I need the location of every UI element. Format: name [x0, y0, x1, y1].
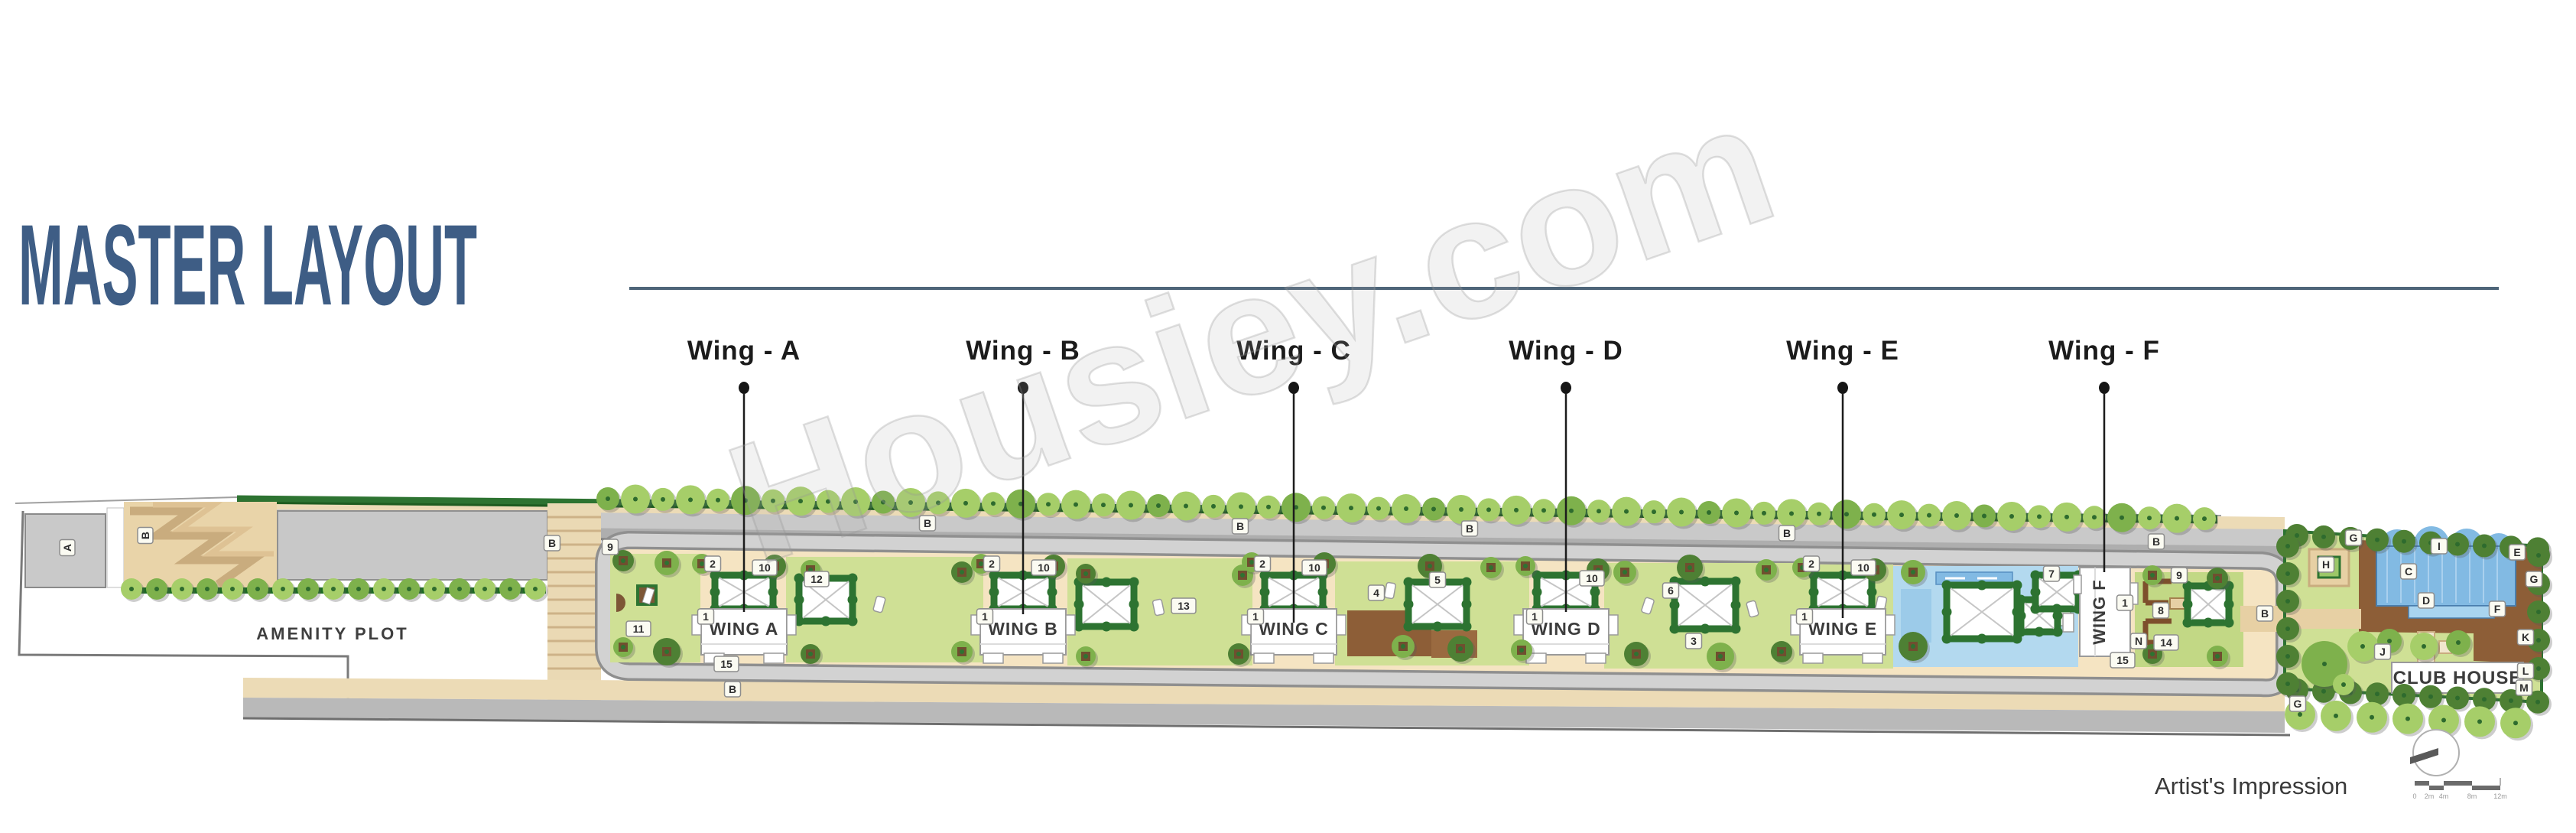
tree-center — [255, 587, 260, 591]
master-layout-page: MASTER LAYOUT — [0, 0, 2576, 833]
hedge-court — [1670, 577, 1741, 634]
tree-center — [1817, 512, 1821, 516]
marker-badge-B: B — [2257, 606, 2273, 621]
marker-badge-11: 11 — [626, 621, 651, 636]
marker-badge-4: 4 — [1369, 585, 1385, 600]
tree-center — [1211, 504, 1216, 509]
svg-text:B: B — [2152, 535, 2160, 548]
tree-center — [2402, 693, 2406, 698]
svg-text:9: 9 — [607, 541, 613, 553]
marker-badge-5: 5 — [1430, 572, 1446, 587]
tree-center — [2477, 719, 2482, 724]
svg-text:N: N — [2135, 635, 2142, 647]
marker-badge-14: 14 — [2154, 635, 2178, 650]
svg-text:H: H — [2322, 558, 2330, 571]
tree-center — [1734, 510, 1739, 515]
wing-callout-label: Wing - F — [2048, 336, 2160, 366]
marker-badge-9: 9 — [2172, 568, 2188, 583]
hedge-bump — [848, 574, 858, 584]
scale-label: 2m — [2425, 792, 2435, 800]
tree-center — [1514, 508, 1519, 512]
svg-text:10: 10 — [1038, 561, 1050, 574]
marker-badge-6: 6 — [1663, 583, 1679, 598]
hedge-bump — [2183, 618, 2193, 628]
tree-center — [2482, 697, 2487, 701]
svg-text:10: 10 — [1586, 572, 1598, 584]
hedge-bump — [2012, 581, 2022, 591]
marker-badge-A: A — [60, 540, 75, 556]
hedge-bump — [1404, 600, 1414, 610]
hedge-bump — [2035, 627, 2045, 637]
svg-text:2: 2 — [1808, 558, 1814, 570]
tree-center — [2120, 516, 2124, 520]
svg-text:3: 3 — [1691, 635, 1697, 647]
hedge-bump — [2204, 618, 2214, 628]
hedge-bump — [1102, 622, 1112, 632]
hedge-bump — [1942, 607, 1952, 617]
tree-center — [2536, 666, 2541, 671]
hedge-bump — [2053, 627, 2063, 637]
marker-badge-B: B — [138, 528, 153, 544]
tree-center — [382, 587, 386, 591]
svg-text:7: 7 — [2048, 568, 2055, 580]
marker-badge-10: 10 — [1031, 560, 1056, 575]
compass-icon — [2410, 730, 2459, 776]
callout-dot — [1561, 382, 1571, 394]
hedge-bump — [1462, 600, 1472, 610]
svg-text:B: B — [1466, 522, 1473, 535]
tree-center — [2456, 640, 2461, 645]
tree-center — [2428, 695, 2433, 699]
hedge-bump — [1129, 578, 1139, 587]
svg-text:14: 14 — [2160, 636, 2172, 649]
hedge-court — [1074, 578, 1139, 632]
hedge-bump — [2224, 600, 2234, 610]
tree-center — [2360, 644, 2365, 649]
svg-text:8: 8 — [2158, 604, 2164, 617]
hedge-bump — [2031, 587, 2041, 597]
callout-dot — [2099, 382, 2110, 394]
tree-center — [1376, 506, 1381, 511]
scale-bar-labels: 02m4m8m12m — [2412, 792, 2506, 800]
tree-center — [633, 496, 638, 501]
hedge-bump — [1731, 577, 1741, 587]
hedge-bump — [1532, 587, 1542, 597]
hedge-bump — [1129, 622, 1139, 632]
hedge-bump — [1404, 622, 1414, 632]
tree-center — [2341, 682, 2346, 687]
tree-center — [2375, 691, 2379, 696]
tree-center — [1707, 510, 1711, 515]
tree-center — [1459, 507, 1463, 512]
tree-center — [2037, 514, 2042, 519]
tree-center — [2455, 542, 2460, 547]
svg-text:F: F — [2494, 603, 2501, 615]
page-title: MASTER LAYOUT — [18, 200, 477, 329]
parking-block — [278, 511, 547, 580]
marker-badge-C: C — [2401, 564, 2417, 579]
svg-text:10: 10 — [1308, 561, 1320, 574]
scale-label: 4m — [2439, 792, 2449, 800]
tree-center — [482, 587, 487, 591]
tree-center — [1349, 506, 1353, 510]
tree-center — [1679, 510, 1684, 515]
marker-badge-1: 1 — [2117, 595, 2133, 610]
scale-label: 12m — [2493, 792, 2507, 800]
svg-text:15: 15 — [720, 658, 733, 670]
tree-center — [1541, 508, 1546, 512]
tree-center — [2321, 535, 2326, 539]
svg-text:C: C — [2405, 565, 2412, 578]
hedge-bump — [1670, 624, 1680, 634]
svg-text:B: B — [548, 537, 556, 549]
wing-callout-label: Wing - D — [1509, 336, 1623, 366]
tree-center — [180, 587, 184, 591]
marker-badge-2: 2 — [1804, 556, 1820, 571]
tree-center — [205, 587, 210, 591]
bench-icon — [1384, 582, 1395, 599]
tree-center — [2387, 639, 2392, 643]
svg-text:6: 6 — [1668, 584, 1674, 597]
hedge-bump — [2224, 618, 2234, 628]
svg-text:A: A — [61, 544, 73, 552]
hedge-bump — [710, 587, 720, 597]
hedge-bump — [1731, 600, 1741, 610]
svg-text:1: 1 — [2122, 597, 2128, 609]
hedge-bump — [1462, 578, 1472, 587]
tree-center — [1844, 512, 1849, 516]
club-house-label: CLUB HOUSE — [2393, 668, 2522, 688]
tree-center — [457, 587, 462, 591]
marker-badge-N: N — [2131, 633, 2147, 649]
tree-center — [2509, 698, 2513, 703]
marker-badge-1: 1 — [698, 609, 714, 624]
tree-center — [1872, 512, 1876, 517]
hedge-bump — [1942, 581, 1952, 591]
marker-badge-G: G — [2346, 530, 2362, 545]
hedge-bump — [1977, 581, 1987, 591]
building-label: WING B — [988, 619, 1058, 639]
tree-center — [2322, 662, 2327, 666]
hedge-bump — [848, 617, 858, 626]
svg-text:B: B — [2261, 607, 2269, 620]
tree-center — [2375, 538, 2379, 542]
marker-badge-2: 2 — [705, 556, 721, 571]
marker-badge-1: 1 — [1527, 609, 1543, 624]
hedge-bump — [1942, 634, 1952, 644]
tree-center — [281, 587, 285, 591]
scale-label: 8m — [2467, 792, 2477, 800]
hedge-bump — [1670, 600, 1680, 610]
tree-center — [1266, 505, 1271, 509]
tree-center — [2334, 714, 2338, 718]
tree-center — [306, 587, 310, 591]
marker-badge-F: F — [2490, 601, 2506, 617]
svg-text:2: 2 — [989, 558, 995, 570]
callout-dot — [1837, 382, 1848, 394]
hedge-bump — [1102, 578, 1112, 587]
tree-center — [2202, 516, 2207, 521]
tree-center — [2441, 718, 2446, 723]
tree-center — [331, 587, 336, 591]
building-label: WING E — [1808, 619, 1877, 639]
tree-center — [1184, 503, 1188, 508]
tree-center — [2295, 533, 2299, 538]
marker-badge-7: 7 — [2044, 566, 2060, 581]
building-label: WING F — [2090, 579, 2109, 644]
svg-text:B: B — [1236, 520, 1244, 532]
svg-text:K: K — [2522, 631, 2529, 643]
svg-text:1: 1 — [1801, 610, 1808, 623]
hedge-bump — [1260, 587, 1270, 597]
hedge-bump — [848, 595, 858, 605]
tree-center — [2321, 689, 2326, 694]
svg-text:G: G — [2530, 573, 2539, 585]
scale-bar — [2415, 778, 2500, 790]
tree-center — [1431, 507, 1436, 512]
tree-center — [1101, 503, 1106, 507]
svg-text:2: 2 — [1259, 558, 1265, 570]
tree-center — [2370, 715, 2374, 720]
tree-center — [1652, 509, 1656, 514]
marker-badge-1: 1 — [1248, 609, 1264, 624]
marker-badge-8: 8 — [2153, 603, 2169, 618]
tree-center — [2285, 682, 2290, 686]
marker-badge-10: 10 — [1580, 571, 1604, 586]
hedge-bump — [2016, 627, 2026, 637]
tree-center — [2536, 610, 2541, 614]
tree-center — [1129, 503, 1133, 508]
svg-text:B: B — [729, 683, 736, 695]
marker-badge-L: L — [2518, 663, 2534, 678]
tree-center — [533, 587, 538, 591]
marker-badge-2: 2 — [984, 556, 1000, 571]
tree-center — [2175, 516, 2179, 521]
credit-text: Artist's Impression — [2155, 773, 2347, 799]
hedge-bump — [1462, 622, 1472, 632]
hedge-bump — [1074, 600, 1084, 610]
marker-badge-I: I — [2431, 539, 2448, 554]
tree-center — [2482, 543, 2487, 548]
marker-badge-B: B — [2149, 534, 2165, 549]
hedge-bump — [2016, 611, 2026, 621]
svg-text:B: B — [139, 532, 151, 539]
tree-center — [407, 587, 411, 591]
tree-center — [2298, 712, 2302, 717]
tree-center — [129, 587, 134, 591]
tree-center — [1789, 511, 1794, 516]
svg-text:D: D — [2422, 594, 2430, 607]
tree-center — [2009, 514, 2014, 519]
wing-callout-label: Wing - A — [687, 336, 801, 366]
tree-center — [2405, 717, 2410, 721]
terrace-steps — [124, 502, 277, 591]
tree-center — [1597, 509, 1601, 513]
svg-text:1: 1 — [982, 610, 988, 623]
amenity-plot-label: AMENITY PLOT — [256, 624, 408, 643]
hedge-bump — [1129, 600, 1139, 610]
scale-label: 0 — [2412, 792, 2416, 800]
marker-badge-13: 13 — [1171, 598, 1196, 613]
svg-text:M: M — [2519, 682, 2529, 694]
tree-center — [2147, 516, 2152, 520]
tree-center — [1404, 506, 1408, 511]
hedge-bump — [2031, 571, 2041, 581]
tree-center — [716, 498, 720, 503]
marker-badge-1: 1 — [977, 609, 993, 624]
tree-center — [1982, 514, 1986, 519]
hedge-bump — [1731, 624, 1741, 634]
tree-center — [1156, 503, 1161, 508]
hedge-bump — [821, 617, 831, 626]
tree-center — [1624, 509, 1629, 514]
hedge-bump — [2052, 604, 2062, 614]
marker-badge-1: 1 — [1797, 609, 1813, 624]
footer: Artist's Impression 02m4m8m12m — [2155, 730, 2507, 800]
svg-text:L: L — [2522, 665, 2529, 677]
marker-badge-B: B — [725, 682, 741, 697]
svg-text:11: 11 — [633, 623, 645, 635]
svg-text:G: G — [2294, 698, 2302, 710]
tree-center — [1954, 513, 1959, 518]
tree-center — [1927, 513, 1931, 518]
marker-badge-B: B — [1462, 521, 1478, 536]
tree-center — [2092, 515, 2097, 519]
tree-center — [1074, 503, 1078, 507]
tree-center — [2285, 626, 2290, 631]
tree-center — [508, 587, 512, 591]
tree-center — [1239, 504, 1243, 509]
marker-badge-15: 15 — [714, 656, 739, 672]
building-label: WING A — [710, 619, 779, 639]
hedge-bump — [1048, 587, 1057, 597]
callout-dot — [739, 382, 749, 394]
tree-center — [2422, 644, 2426, 649]
svg-text:4: 4 — [1373, 587, 1379, 599]
svg-text:J: J — [2379, 646, 2386, 658]
marker-badge-B: B — [1779, 526, 1795, 541]
hedge-bump — [1867, 587, 1877, 597]
site-plan-svg: MASTER LAYOUT — [0, 0, 2576, 833]
svg-text:15: 15 — [2116, 654, 2129, 666]
svg-text:5: 5 — [1434, 574, 1441, 586]
svg-text:1: 1 — [703, 610, 709, 623]
tree-center — [2285, 571, 2290, 576]
marker-badge-B: B — [544, 535, 560, 551]
tree-center — [2064, 515, 2069, 519]
tree-center — [1569, 509, 1574, 513]
svg-text:10: 10 — [1857, 561, 1869, 574]
hedge-bump — [1977, 634, 1987, 644]
marker-badge-3: 3 — [1686, 633, 1702, 649]
svg-text:I: I — [2438, 540, 2441, 552]
hedge-court — [1942, 581, 2022, 644]
svg-text:13: 13 — [1178, 600, 1190, 612]
tree-center — [1321, 506, 1326, 510]
tree-center — [1899, 512, 1904, 517]
svg-text:2: 2 — [710, 558, 716, 570]
marker-badge-J: J — [2375, 644, 2391, 659]
marker-badge-15: 15 — [2110, 652, 2135, 668]
tree-center — [2402, 539, 2406, 544]
wing-building: WING F — [2074, 568, 2138, 656]
svg-text:B: B — [1783, 527, 1791, 539]
svg-text:1: 1 — [1532, 610, 1538, 623]
marker-badge-G: G — [2526, 571, 2542, 587]
marker-badge-D: D — [2418, 593, 2435, 608]
tree-center — [606, 496, 610, 501]
svg-text:G: G — [2350, 532, 2358, 544]
tree-center — [432, 587, 437, 591]
tree-center — [2535, 700, 2540, 704]
hedge-bump — [2183, 600, 2193, 610]
hedge-bump — [1590, 587, 1600, 597]
marker-badge-10: 10 — [1302, 560, 1327, 575]
hedge-bump — [1318, 587, 1328, 597]
marker-badge-9: 9 — [603, 539, 619, 555]
tree-center — [230, 587, 235, 591]
svg-text:9: 9 — [2176, 569, 2182, 581]
marker-badge-E: E — [2509, 545, 2526, 560]
svg-text:1: 1 — [1252, 610, 1259, 623]
marker-badge-K: K — [2518, 630, 2534, 645]
tree-center — [661, 497, 665, 502]
tree-center — [356, 587, 361, 591]
hedge-bump — [2031, 604, 2041, 614]
tree-center — [154, 587, 159, 591]
tree-center — [1486, 507, 1491, 512]
tree-center — [2536, 553, 2541, 558]
hedge-bump — [1809, 587, 1819, 597]
hedge-bump — [2016, 595, 2026, 605]
wing-callout-label: Wing - E — [1786, 336, 1899, 366]
marker-badge-G: G — [2290, 696, 2306, 711]
marker-badge-B: B — [1233, 519, 1249, 534]
tree-center — [1762, 511, 1766, 516]
svg-text:E: E — [2513, 546, 2520, 558]
hedge-bump — [989, 587, 999, 597]
tree-center — [2513, 721, 2518, 725]
tree-center — [688, 497, 693, 502]
tree-center — [2285, 654, 2290, 659]
tree-center — [2285, 599, 2290, 604]
marker-badge-10: 10 — [1851, 560, 1876, 575]
hedge-bump — [1404, 578, 1414, 587]
tree-center — [2285, 544, 2290, 548]
tree-center — [2455, 696, 2460, 701]
marker-badge-H: H — [2318, 557, 2334, 572]
hedge-bump — [794, 595, 804, 605]
marker-badge-M: M — [2516, 680, 2532, 695]
tree-center — [2536, 638, 2541, 643]
hedge-bump — [1701, 624, 1710, 634]
hedge-bump — [1433, 622, 1443, 632]
marker-badge-2: 2 — [1255, 556, 1271, 571]
